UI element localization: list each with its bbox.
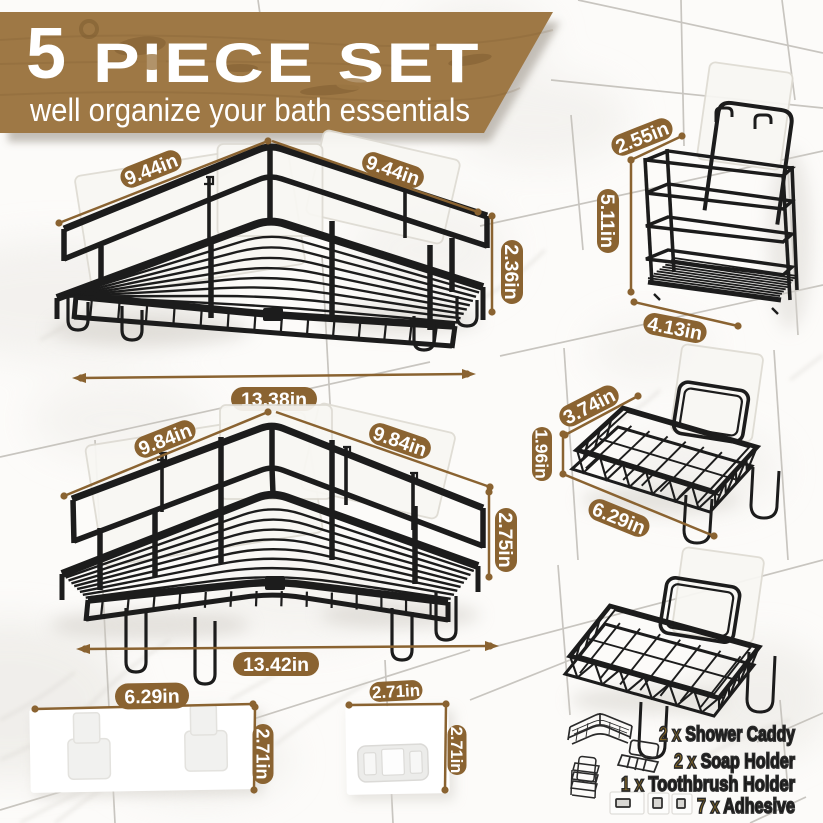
svg-text:1.96in: 1.96in <box>532 429 552 479</box>
svg-text:7 x Adhesive: 7 x Adhesive <box>697 795 795 818</box>
svg-text:2.71in: 2.71in <box>447 727 465 774</box>
svg-text:2.75in: 2.75in <box>494 512 516 567</box>
svg-text:13.42in: 13.42in <box>243 654 309 676</box>
svg-text:5.11in: 5.11in <box>596 194 618 248</box>
svg-text:2 x Shower Caddy: 2 x Shower Caddy <box>659 723 795 746</box>
svg-text:2 x Soap Holder: 2 x Soap Holder <box>674 750 795 773</box>
svg-text:6.29in: 6.29in <box>124 686 180 709</box>
svg-text:2.36in: 2.36in <box>500 244 522 299</box>
svg-text:2.71in: 2.71in <box>253 728 273 779</box>
svg-text:1 x Toothbrush Holder: 1 x Toothbrush Holder <box>621 773 795 796</box>
svg-text:5: 5 <box>26 14 66 94</box>
svg-text:well organize your bath essent: well organize your bath essentials <box>29 92 470 128</box>
svg-text:2.71in: 2.71in <box>371 681 420 702</box>
